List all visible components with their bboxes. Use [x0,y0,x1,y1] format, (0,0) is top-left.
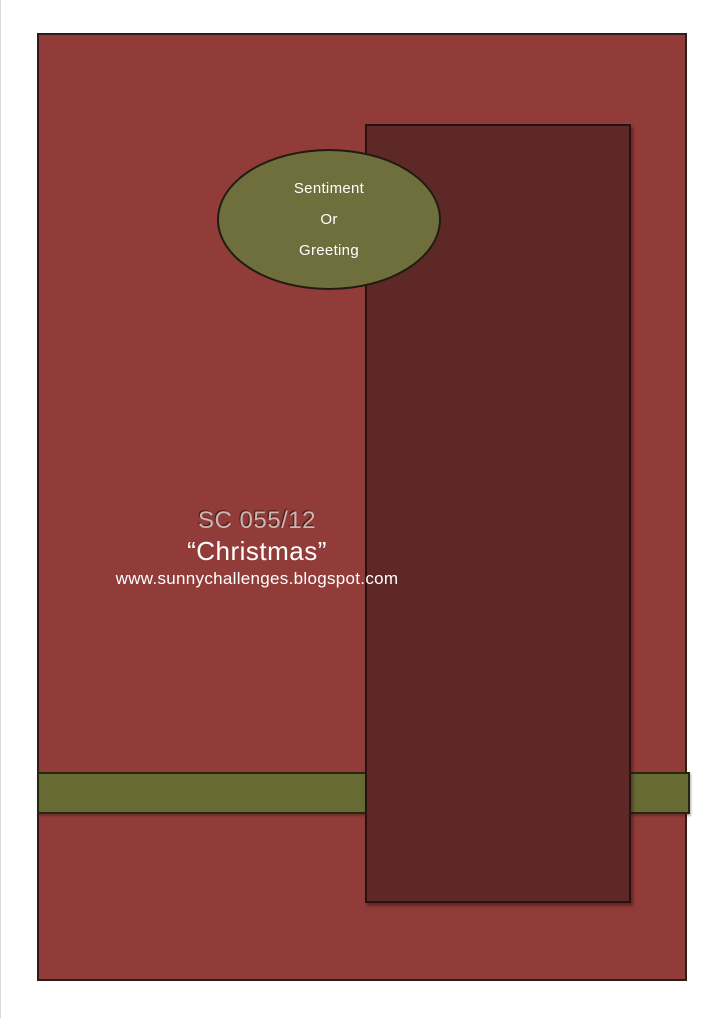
challenge-theme: “Christmas” [61,536,453,567]
sketch-page: Sentiment Or Greeting SC 055/12 “Christm… [0,0,720,1018]
ellipse-line-greeting: Greeting [299,242,359,260]
challenge-url: www.sunnychallenges.blogspot.com [61,567,453,591]
challenge-code: SC 055/12 [61,506,453,536]
title-block: SC 055/12 “Christmas” www.sunnychallenge… [61,506,453,591]
ellipse-line-or: Or [320,211,337,229]
ellipse-line-sentiment: Sentiment [294,180,364,198]
sentiment-ellipse: Sentiment Or Greeting [217,149,441,290]
